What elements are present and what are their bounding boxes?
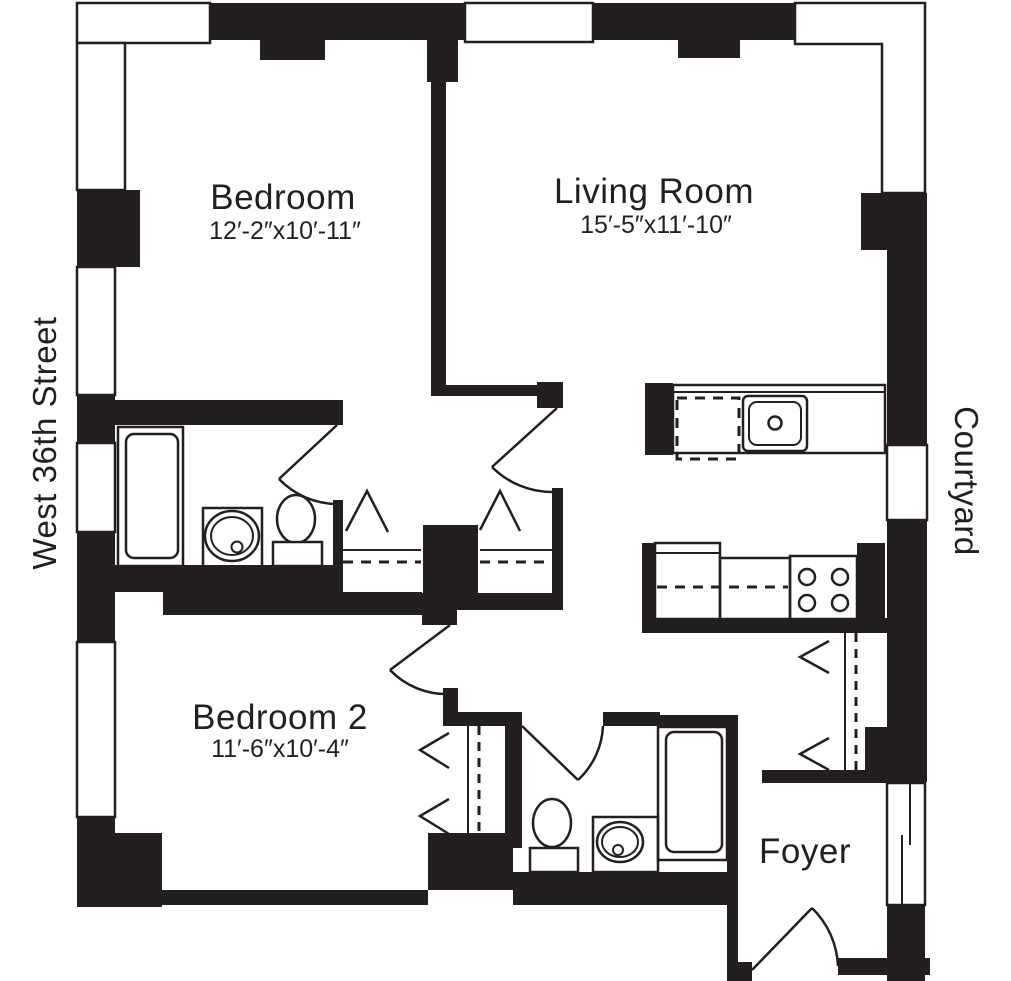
toilet-bowl — [277, 495, 315, 543]
burner-icon — [832, 595, 848, 611]
dishwasher — [677, 398, 739, 459]
bedroom-2-door-leaf — [390, 625, 450, 670]
bathtub-alcove — [658, 727, 727, 860]
bathroom-2-door-leaf — [522, 726, 578, 780]
bathroom-2-door-arc — [578, 726, 603, 780]
bedroom-2-label: Bedroom 2 — [192, 698, 368, 737]
kitchen — [655, 385, 885, 619]
bedroom-2-features — [390, 625, 479, 835]
window-left-1 — [77, 43, 125, 190]
closet-rod-chevron — [800, 641, 829, 673]
bedroom-dims: 12′-2″x10′-11″ — [209, 217, 361, 245]
bedroom-2-dims: 11′-6″x10′-4″ — [211, 735, 349, 763]
closet-rod-chevron — [420, 799, 449, 834]
service-door — [887, 783, 925, 905]
window-left-2 — [77, 267, 115, 395]
window-top-left — [77, 3, 210, 43]
toilet-tank — [530, 848, 578, 872]
hall-door-arc — [492, 467, 553, 492]
burner-icon — [799, 595, 815, 611]
sink-drain — [613, 845, 623, 855]
bathtub — [126, 434, 178, 558]
burner-icon — [799, 569, 815, 585]
floor-plan: Bedroom 12′-2″x10′-11″ Living Room 15′-5… — [0, 0, 1011, 981]
window-left-4 — [77, 642, 115, 817]
hall-door-leaf — [492, 408, 557, 467]
bathroom-2 — [522, 726, 727, 872]
bathtub — [666, 732, 722, 852]
entry-door-arc — [812, 908, 838, 966]
sink-basin-inner — [602, 827, 638, 857]
window-top-right-corner — [795, 3, 925, 193]
living-room-label: Living Room — [554, 172, 754, 211]
foyer-label: Foyer — [759, 832, 851, 871]
courtyard-label: Courtyard — [948, 406, 985, 555]
window-top-center — [465, 3, 593, 42]
stove — [790, 556, 857, 619]
sink-drain — [769, 417, 782, 430]
toilet-tank — [273, 542, 322, 566]
bathroom-1-door-leaf — [279, 425, 337, 479]
bathroom-1 — [118, 425, 337, 568]
living-room-dims: 15′-5″x11′-10″ — [580, 211, 732, 239]
closet-rod-chevron — [800, 738, 829, 770]
sink-drain — [232, 542, 243, 553]
window-left-3 — [77, 443, 115, 532]
kitchen-sink-inner — [749, 402, 801, 445]
window-right-kitchen — [887, 445, 927, 520]
entry-door-leaf — [752, 908, 812, 970]
closet-rod-chevron — [480, 491, 520, 531]
closet-rod-chevron — [420, 733, 449, 768]
toilet-bowl — [533, 799, 571, 847]
refrigerator — [655, 543, 720, 619]
bedroom-label: Bedroom — [210, 178, 356, 217]
bathtub-alcove — [118, 427, 183, 566]
floor-plan-canvas: Bedroom 12′-2″x10′-11″ Living Room 15′-5… — [0, 0, 1011, 981]
street-label: West 36th Street — [26, 316, 63, 569]
closet-rod-chevron — [346, 491, 388, 532]
burner-icon — [832, 569, 848, 585]
bedroom-2-door-arc — [390, 670, 449, 694]
sink-basin — [205, 511, 259, 561]
